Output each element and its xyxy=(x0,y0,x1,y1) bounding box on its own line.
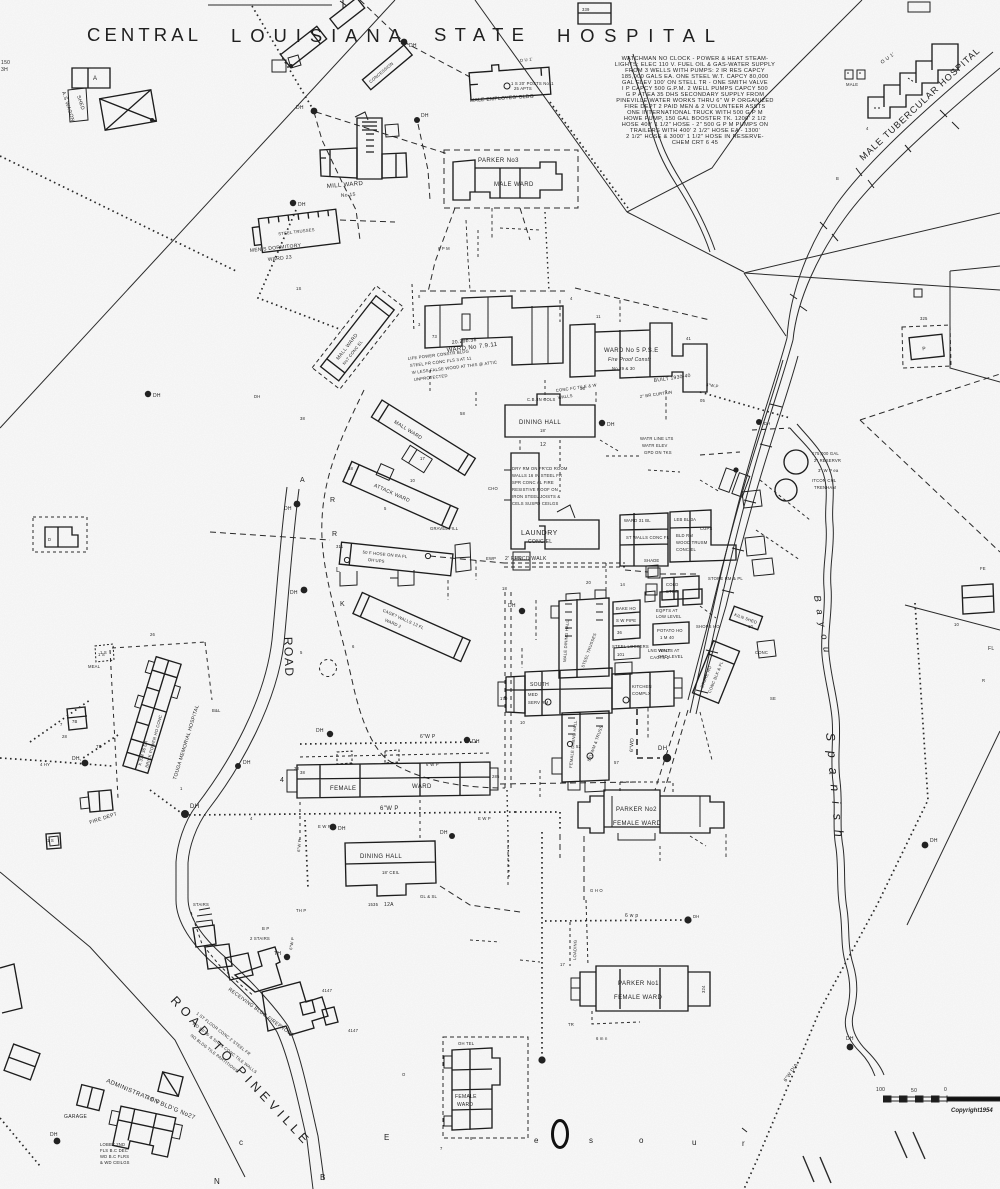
svg-text:05: 05 xyxy=(700,398,706,403)
svg-text:GRD LEVEL: GRD LEVEL xyxy=(658,654,684,659)
svg-text:6 m n: 6 m n xyxy=(596,1036,608,1041)
svg-text:GRAVEL FILL: GRAVEL FILL xyxy=(430,526,459,531)
svg-text:TH: TH xyxy=(274,951,281,957)
svg-text:3H: 3H xyxy=(1,67,8,73)
svg-text:WARD: WARD xyxy=(412,784,432,790)
svg-text:LOBBY 2ND: LOBBY 2ND xyxy=(100,1142,125,1147)
svg-text:GARAGE: GARAGE xyxy=(64,1114,88,1120)
svg-text:1 S: 1 S xyxy=(47,838,54,843)
svg-text:ROAD: ROAD xyxy=(281,637,296,678)
svg-text:17: 17 xyxy=(560,962,566,967)
svg-text:BAKE HO: BAKE HO xyxy=(616,606,637,611)
svg-text:PARKER No2: PARKER No2 xyxy=(616,807,657,813)
svg-text:26: 26 xyxy=(150,632,156,637)
svg-text:175,000 GAL: 175,000 GAL xyxy=(812,451,839,456)
svg-text:B: B xyxy=(320,1173,326,1182)
svg-text:4147: 4147 xyxy=(348,1028,359,1033)
svg-text:DH: DH xyxy=(409,43,417,49)
svg-text:VENTS AT: VENTS AT xyxy=(658,648,680,653)
svg-text:POTATO HO: POTATO HO xyxy=(657,628,683,633)
svg-text:TR: TR xyxy=(568,1022,574,1027)
svg-text:DH: DH xyxy=(72,756,80,762)
svg-text:CUPS: CUPS xyxy=(700,526,712,531)
svg-text:325: 325 xyxy=(920,316,928,321)
svg-text:FEMALE: FEMALE xyxy=(455,1094,477,1100)
svg-text:SHADE: SHADE xyxy=(644,558,659,563)
svg-text:6"WD: 6"WD xyxy=(629,738,635,752)
svg-text:6"W P: 6"W P xyxy=(420,734,436,740)
svg-text:11: 11 xyxy=(596,314,601,319)
svg-text:FE: FE xyxy=(980,566,986,571)
svg-text:CONC EL: CONC EL xyxy=(676,547,696,552)
svg-text:28: 28 xyxy=(62,734,68,739)
svg-text:LAUNDRY: LAUNDRY xyxy=(521,530,558,537)
svg-text:MALE: MALE xyxy=(846,82,858,87)
svg-text:N: N xyxy=(214,1177,220,1186)
svg-text:6 w p: 6 w p xyxy=(625,913,638,919)
svg-text:38: 38 xyxy=(300,416,306,421)
svg-text:PARKER No3: PARKER No3 xyxy=(478,158,519,164)
svg-text:r: r xyxy=(742,1139,745,1148)
svg-text:ITCON CHL: ITCON CHL xyxy=(812,478,837,483)
svg-text:OH TEL: OH TEL xyxy=(458,1041,475,1046)
svg-text:10: 10 xyxy=(520,720,526,725)
svg-text:285: 285 xyxy=(492,774,500,779)
svg-text:57: 57 xyxy=(614,760,620,765)
svg-text:u: u xyxy=(692,1138,697,1147)
svg-text:2' FENCD WALK: 2' FENCD WALK xyxy=(505,556,547,562)
svg-text:DH: DH xyxy=(472,739,480,745)
svg-text:CHO: CHO xyxy=(488,486,498,491)
svg-text:WATR LINE LTS: WATR LINE LTS xyxy=(640,436,673,441)
svg-text:WARD: WARD xyxy=(457,1102,473,1108)
svg-text:G H O: G H O xyxy=(590,888,603,893)
svg-text:311: 311 xyxy=(336,544,344,549)
svg-text:DH: DH xyxy=(930,838,938,844)
svg-text:S W PIPE: S W PIPE xyxy=(616,618,636,623)
svg-text:10: 10 xyxy=(410,478,416,483)
svg-text:A: A xyxy=(300,477,305,484)
svg-text:1535: 1535 xyxy=(368,902,379,907)
svg-text:BLD RM: BLD RM xyxy=(676,533,693,538)
svg-text:s: s xyxy=(589,1136,594,1145)
svg-text:TRENHAM: TRENHAM xyxy=(814,485,836,490)
svg-text:100: 100 xyxy=(876,1087,885,1093)
svg-text:DH: DH xyxy=(243,760,251,766)
svg-text:DH: DH xyxy=(658,746,667,752)
svg-text:DINING HALL: DINING HALL xyxy=(519,420,561,426)
svg-text:12: 12 xyxy=(540,442,546,448)
svg-text:R: R xyxy=(982,678,985,683)
svg-text:DH: DH xyxy=(764,421,770,426)
svg-text:101: 101 xyxy=(617,652,625,657)
svg-text:DH: DH xyxy=(421,113,429,119)
svg-text:339: 339 xyxy=(582,7,590,12)
svg-text:LOUISIANA: LOUISIANA xyxy=(231,25,402,46)
svg-text:TH P: TH P xyxy=(296,908,306,913)
svg-text:Copyright1954: Copyright1954 xyxy=(951,1108,993,1114)
svg-text:FEMALE: FEMALE xyxy=(330,786,356,792)
svg-text:DH: DH xyxy=(190,804,199,810)
svg-text:A: A xyxy=(93,76,97,82)
svg-text:DH: DH xyxy=(607,422,615,428)
svg-text:GL & SL: GL & SL xyxy=(420,894,438,899)
svg-text:DH: DH xyxy=(153,393,161,399)
svg-text:WATR ELEV: WATR ELEV xyxy=(642,443,668,448)
svg-text:WARD No 5 P.S.E: WARD No 5 P.S.E xyxy=(604,348,659,354)
svg-text:14: 14 xyxy=(620,582,626,587)
svg-text:DH: DH xyxy=(298,202,306,208)
svg-text:1 M 40: 1 M 40 xyxy=(660,635,674,640)
svg-text:MEAL: MEAL xyxy=(88,664,101,669)
svg-text:2" RESERVR: 2" RESERVR xyxy=(814,458,841,463)
svg-text:O: O xyxy=(402,1072,406,1077)
svg-text:73: 73 xyxy=(432,334,438,339)
svg-text:GPD ON TKS: GPD ON TKS xyxy=(644,450,672,455)
svg-text:PARKER No1: PARKER No1 xyxy=(618,981,659,987)
svg-text:DH: DH xyxy=(284,506,292,512)
svg-text:170: 170 xyxy=(500,696,508,701)
svg-text:0: 0 xyxy=(944,1087,947,1093)
svg-text:TB: TB xyxy=(96,744,102,749)
svg-text:6"W P: 6"W P xyxy=(380,806,399,812)
svg-text:18' CEIL: 18' CEIL xyxy=(382,870,400,875)
svg-text:DH: DH xyxy=(290,590,298,596)
svg-text:38: 38 xyxy=(300,770,306,775)
svg-text:CONC: CONC xyxy=(755,650,768,655)
svg-text:DH: DH xyxy=(846,1036,854,1042)
svg-text:KITCHEN: KITCHEN xyxy=(632,684,652,689)
svg-text:B&L: B&L xyxy=(212,708,221,713)
svg-text:FEMALE WARD: FEMALE WARD xyxy=(613,821,661,827)
svg-text:36: 36 xyxy=(617,630,623,635)
svg-text:COLD: COLD xyxy=(666,582,678,587)
svg-text:58: 58 xyxy=(460,411,466,416)
svg-text:41: 41 xyxy=(686,336,692,341)
svg-text:12A: 12A xyxy=(384,902,394,908)
svg-text:18: 18 xyxy=(502,586,508,591)
svg-text:FL: FL xyxy=(988,646,994,652)
svg-text:RESISTIVE ROOF ON: RESISTIVE ROOF ON xyxy=(512,487,558,492)
svg-text:LEB BL 3A: LEB BL 3A xyxy=(674,517,696,522)
svg-text:2 STAIRS: 2 STAIRS xyxy=(250,936,270,941)
svg-text:50: 50 xyxy=(911,1088,917,1094)
svg-text:6 P M: 6 P M xyxy=(438,246,450,251)
svg-text:STORE RM & PL: STORE RM & PL xyxy=(708,576,743,581)
svg-text:COMPLX: COMPLX xyxy=(632,691,651,696)
svg-text:DH: DH xyxy=(316,728,324,734)
svg-text:B P: B P xyxy=(262,926,269,931)
svg-text:DINING HALL: DINING HALL xyxy=(360,854,402,860)
svg-text:LOW LEVEL: LOW LEVEL xyxy=(656,614,682,619)
svg-text:WOOD TRUSM: WOOD TRUSM xyxy=(676,540,708,545)
svg-text:CONC EL: CONC EL xyxy=(528,539,552,545)
svg-text:FLS B.C DEC: FLS B.C DEC xyxy=(100,1148,128,1153)
svg-text:10: 10 xyxy=(748,624,754,629)
svg-text:R: R xyxy=(330,497,336,504)
svg-text:C.B. IN COLS: C.B. IN COLS xyxy=(527,397,555,402)
svg-text:10: 10 xyxy=(954,622,960,627)
svg-text:38: 38 xyxy=(348,466,354,471)
svg-text:Fire Proof Constr: Fire Proof Constr xyxy=(608,357,651,363)
svg-text:EWP: EWP xyxy=(486,556,496,561)
svg-text:36: 36 xyxy=(580,386,586,391)
svg-text:SE: SE xyxy=(770,696,776,701)
svg-text:3" W P ea: 3" W P ea xyxy=(818,468,839,473)
svg-text:IRON STEEL JOISTS &: IRON STEEL JOISTS & xyxy=(512,494,560,499)
svg-text:SOUTH: SOUTH xyxy=(530,682,549,688)
svg-text:L: L xyxy=(336,567,340,574)
svg-text:7B: 7B xyxy=(72,719,78,724)
svg-text:SPR CONC AL FIRE: SPR CONC AL FIRE xyxy=(512,480,554,485)
svg-text:EQPTS AT: EQPTS AT xyxy=(656,608,678,613)
svg-text:20: 20 xyxy=(586,580,592,585)
svg-text:FEMALE WARD: FEMALE WARD xyxy=(614,995,662,1001)
svg-text:1 S: 1 S xyxy=(100,650,107,655)
svg-text:DH: DH xyxy=(254,394,260,399)
svg-text:DH: DH xyxy=(508,603,516,609)
svg-text:B: B xyxy=(836,176,839,181)
svg-text:DH: DH xyxy=(440,830,448,836)
svg-text:MALE WARD: MALE WARD xyxy=(494,182,534,188)
svg-text:E: E xyxy=(384,1133,390,1142)
svg-text:E W P: E W P xyxy=(318,824,331,829)
svg-text:CENTRAL: CENTRAL xyxy=(87,24,198,45)
svg-text:e: e xyxy=(534,1136,539,1145)
svg-text:K: K xyxy=(340,601,345,608)
svg-text:150: 150 xyxy=(1,60,10,66)
svg-text:STAIRS: STAIRS xyxy=(193,902,209,907)
svg-text:38: 38 xyxy=(294,766,300,771)
svg-text:HOSPITAL: HOSPITAL xyxy=(557,25,715,46)
svg-text:4: 4 xyxy=(280,777,284,784)
svg-text:D: D xyxy=(48,537,51,542)
svg-text:52: 52 xyxy=(576,744,582,749)
svg-text:4147: 4147 xyxy=(322,988,333,993)
svg-text:25 APTS: 25 APTS xyxy=(514,86,532,91)
svg-text:E W P: E W P xyxy=(478,816,491,821)
svg-text:DH: DH xyxy=(296,105,304,111)
svg-text:& WD CEILGS: & WD CEILGS xyxy=(100,1160,130,1165)
svg-text:No 29 & 30: No 29 & 30 xyxy=(612,366,635,371)
svg-text:SHOPS HO: SHOPS HO xyxy=(696,624,720,629)
svg-text:R: R xyxy=(332,531,338,538)
svg-text:DH: DH xyxy=(693,914,699,919)
svg-text:c: c xyxy=(239,1138,244,1147)
svg-text:WALLS 16 IN STEEL FR: WALLS 16 IN STEEL FR xyxy=(512,473,562,478)
svg-text:DH: DH xyxy=(338,826,346,832)
svg-text:18': 18' xyxy=(540,428,546,433)
svg-text:o: o xyxy=(639,1136,644,1145)
svg-text:17: 17 xyxy=(420,456,426,461)
svg-text:324: 324 xyxy=(701,985,706,993)
svg-text:6"W P: 6"W P xyxy=(426,762,439,767)
svg-text:DH: DH xyxy=(50,1132,58,1138)
svg-text:ST WALLS CONC FL: ST WALLS CONC FL xyxy=(626,535,670,540)
svg-text:1S: 1S xyxy=(296,286,302,291)
svg-text:MED: MED xyxy=(528,692,538,697)
svg-text:WD B.C FLRS: WD B.C FLRS xyxy=(100,1154,129,1159)
svg-text:WARD 31 BL: WARD 31 BL xyxy=(624,518,651,523)
svg-text:STEEL LOCKERS: STEEL LOCKERS xyxy=(612,644,649,649)
svg-text:CHEM CRT 6 45: CHEM CRT 6 45 xyxy=(672,140,718,146)
svg-text:CELS SUSPD CEILGS: CELS SUSPD CEILGS xyxy=(512,501,558,506)
svg-text:LOADING: LOADING xyxy=(572,940,578,960)
svg-text:4 HY: 4 HY xyxy=(40,762,50,767)
